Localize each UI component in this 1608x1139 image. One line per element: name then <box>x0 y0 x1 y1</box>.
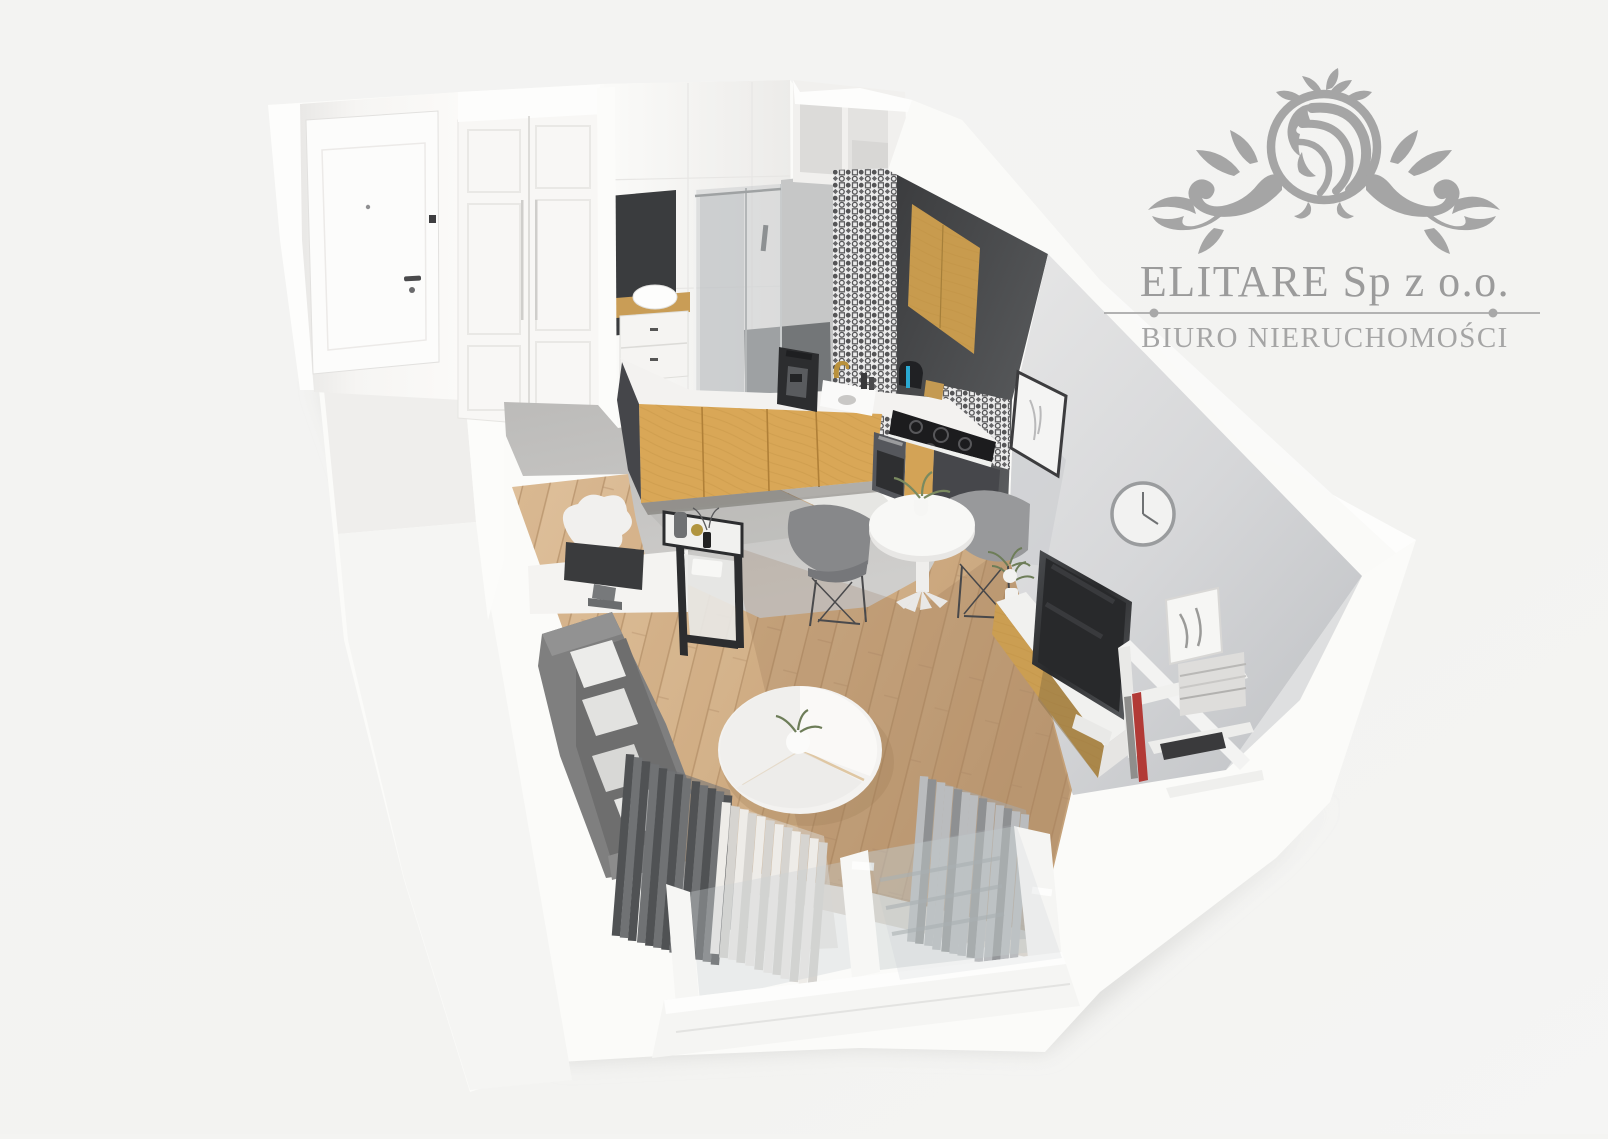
svg-text:ELITARE Sp z o.o.: ELITARE Sp z o.o. <box>1140 257 1510 306</box>
svg-text:BIURO NIERUCHOMOŚCI: BIURO NIERUCHOMOŚCI <box>1141 321 1509 354</box>
